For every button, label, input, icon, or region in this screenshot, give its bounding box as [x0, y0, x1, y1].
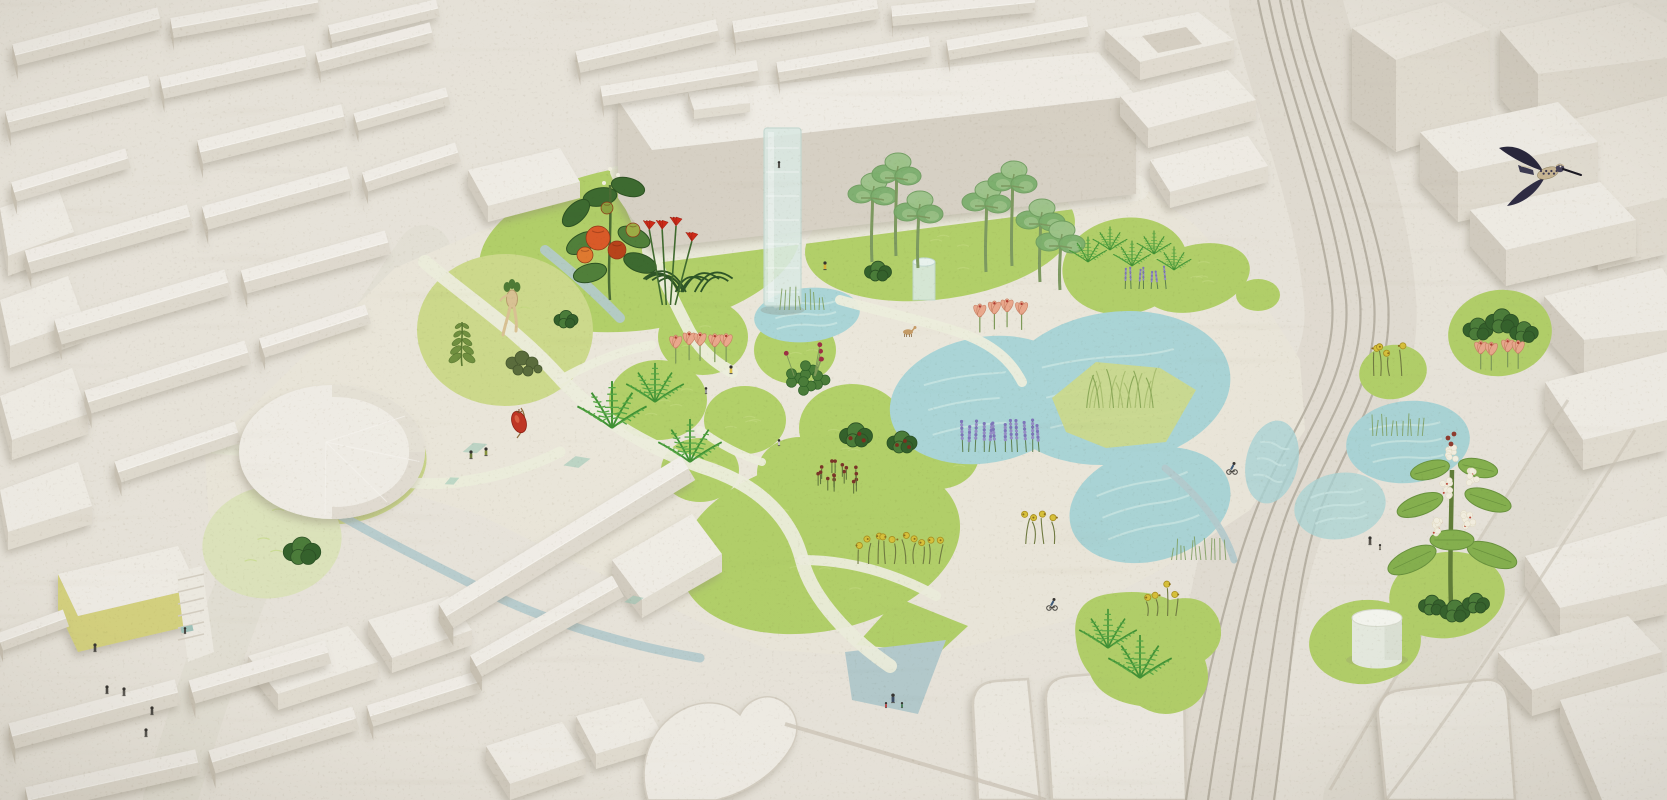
scene-canvas: [0, 0, 1667, 800]
paper-fiber-overlay: [0, 0, 1667, 800]
park-aerial-rendering: [0, 0, 1667, 800]
